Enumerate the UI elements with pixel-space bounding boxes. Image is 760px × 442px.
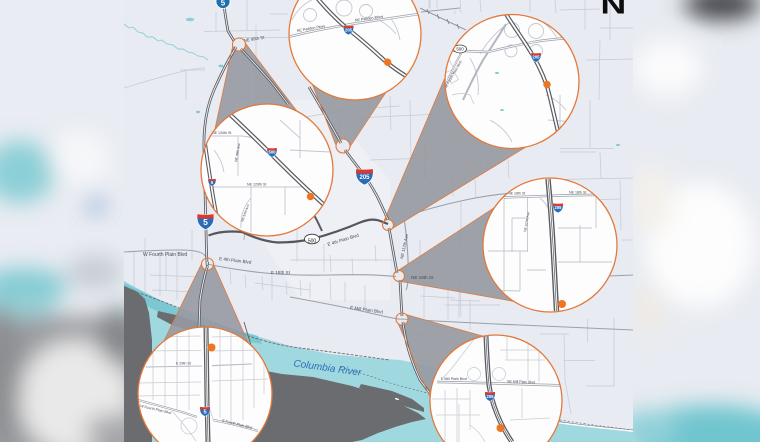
svg-text:205: 205 — [533, 55, 541, 60]
svg-text:500: 500 — [269, 150, 277, 155]
svg-text:500: 500 — [308, 238, 317, 244]
svg-text:NE 134th St: NE 134th St — [212, 131, 231, 135]
svg-text:205: 205 — [555, 205, 563, 210]
svg-text:E 29th St: E 29th St — [176, 362, 191, 366]
svg-text:NE 129th St: NE 129th St — [247, 183, 266, 187]
svg-text:NE 18th St: NE 18th St — [411, 275, 434, 280]
svg-text:205: 205 — [345, 27, 353, 32]
svg-text:5: 5 — [221, 0, 226, 8]
svg-text:N: N — [601, 0, 627, 19]
svg-text:E Mill Plain Blvd: E Mill Plain Blvd — [441, 377, 467, 381]
svg-text:205: 205 — [359, 175, 370, 181]
svg-text:W Fourth Plain Blvd: W Fourth Plain Blvd — [143, 252, 187, 258]
svg-text:500: 500 — [456, 47, 464, 52]
svg-text:E 18th St: E 18th St — [271, 270, 291, 275]
svg-text:5: 5 — [203, 217, 208, 227]
svg-text:NE 18th St: NE 18th St — [508, 192, 525, 196]
svg-text:205: 205 — [487, 394, 495, 399]
svg-text:NE 18th St: NE 18th St — [569, 191, 586, 195]
svg-text:5: 5 — [203, 409, 206, 415]
